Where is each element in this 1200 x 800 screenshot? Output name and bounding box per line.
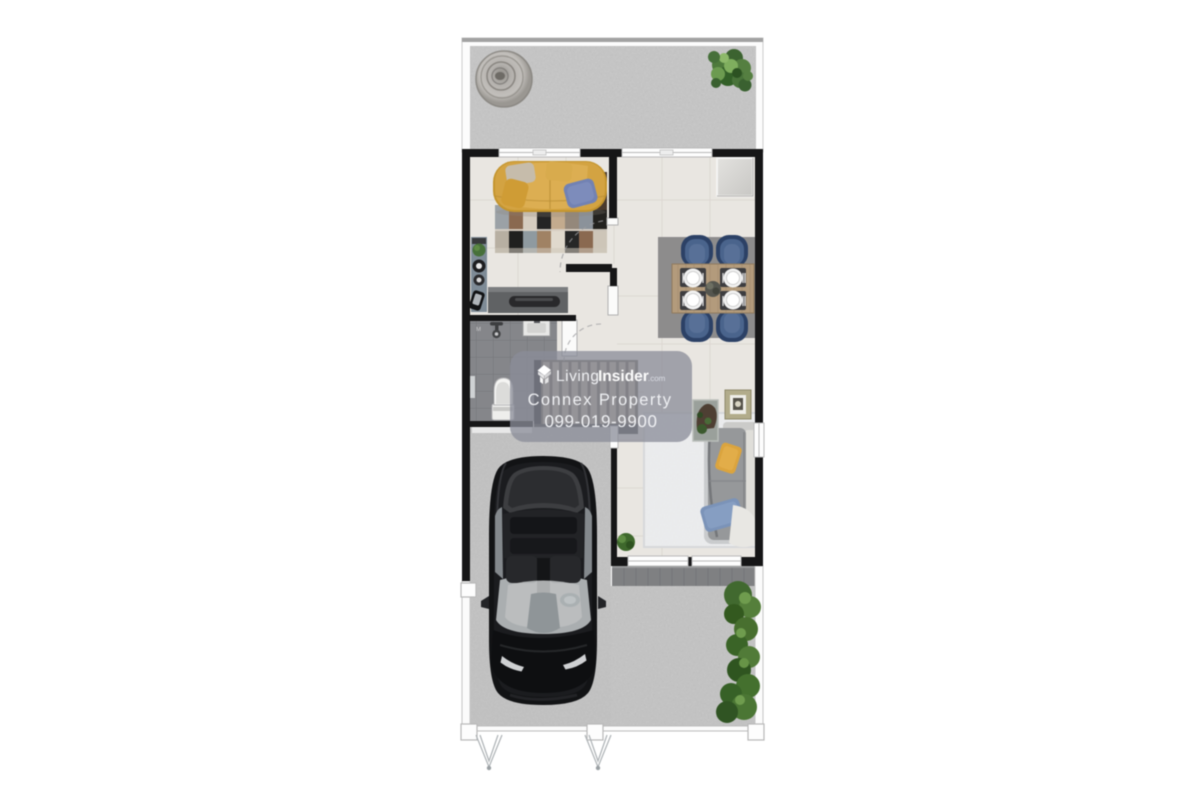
- svg-text:.com: .com: [648, 374, 666, 383]
- svg-text:Living: Living: [556, 368, 600, 385]
- svg-text:Connex Property: Connex Property: [528, 391, 673, 409]
- svg-text:099-019-9900: 099-019-9900: [544, 412, 657, 431]
- svg-text:Insider: Insider: [598, 368, 649, 385]
- svg-text:M: M: [476, 326, 481, 333]
